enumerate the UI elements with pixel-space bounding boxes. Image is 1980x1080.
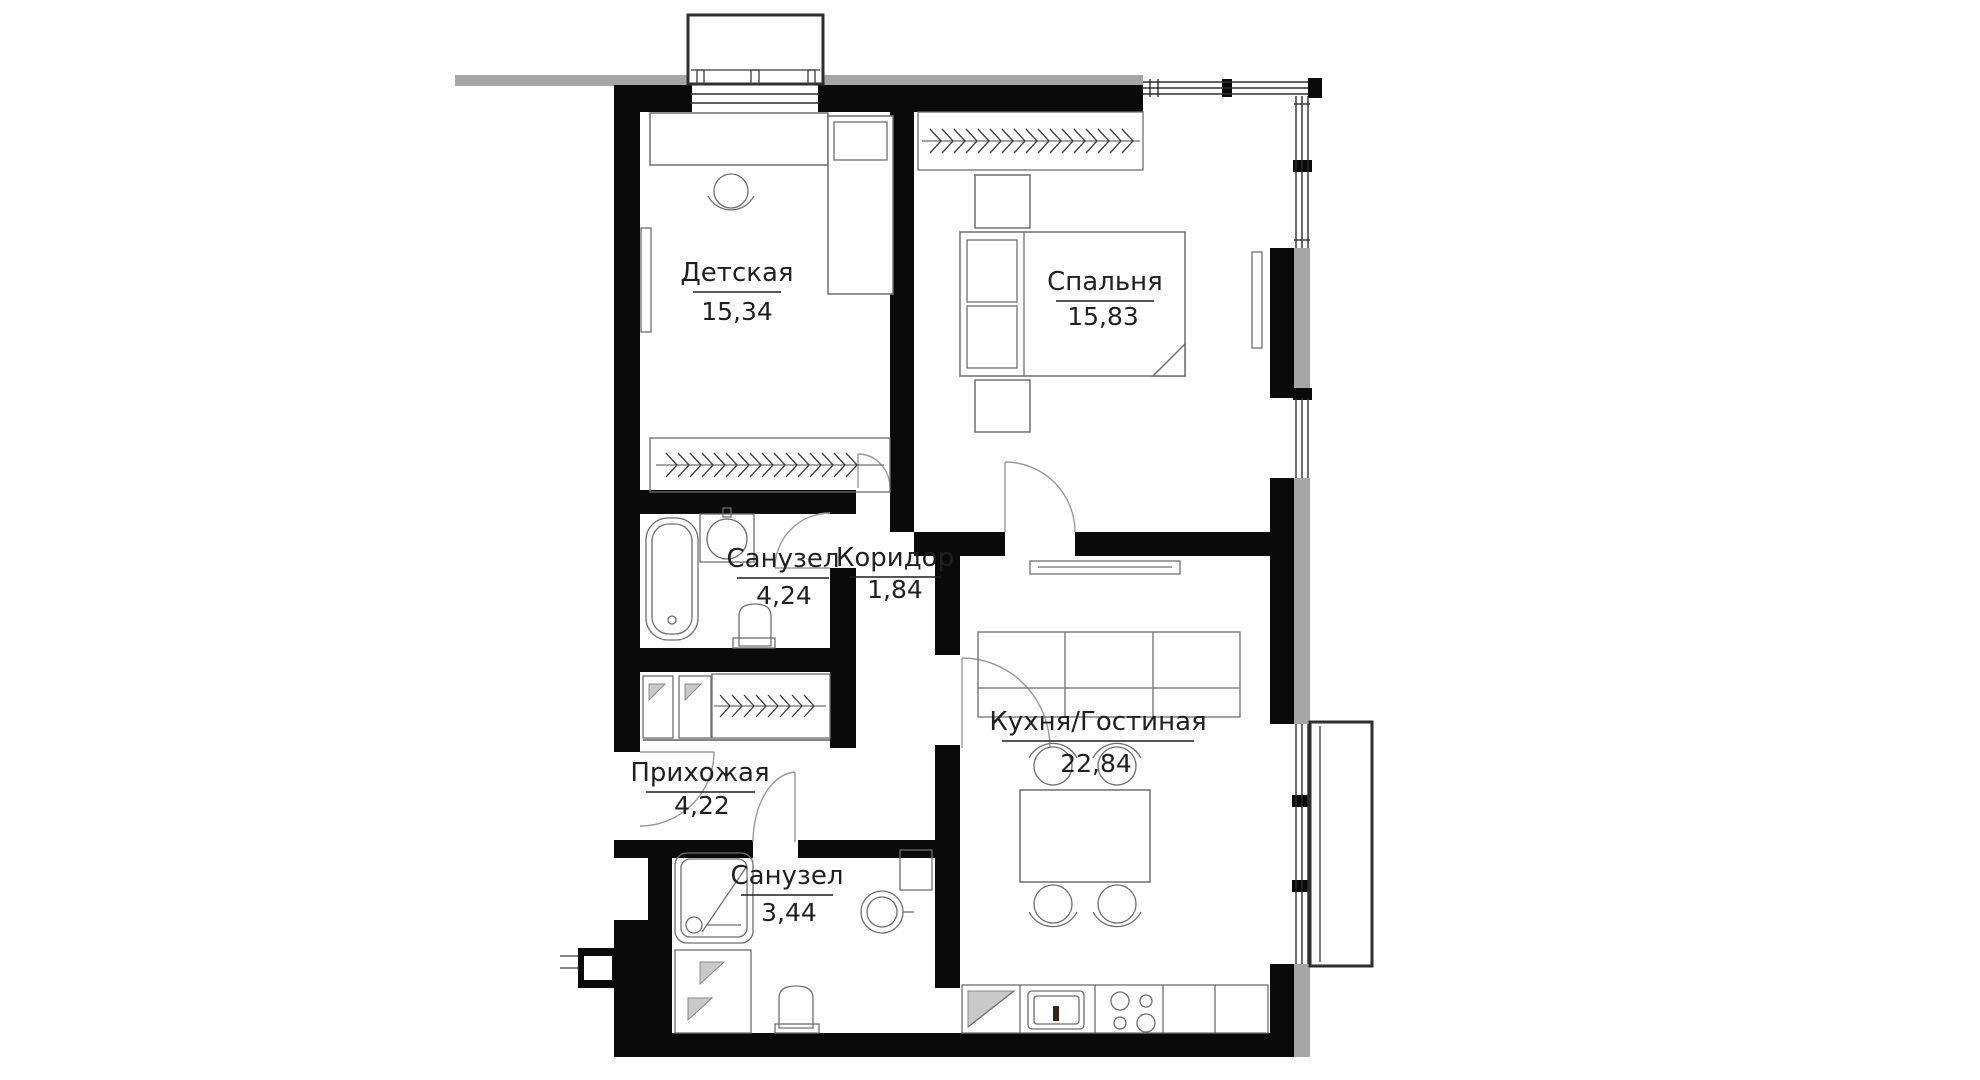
stove-burner bbox=[1114, 1017, 1126, 1029]
label-kitchen-living: Кухня/Гостиная 22,84 bbox=[989, 707, 1206, 778]
balcony-top bbox=[688, 15, 823, 84]
wall-balcony-jamb-right bbox=[818, 85, 828, 112]
bathroom1-toilet-bowl bbox=[739, 604, 771, 646]
washing-machine-drum bbox=[867, 897, 897, 927]
wall-bath2-top-right bbox=[798, 840, 960, 858]
wall-left bbox=[614, 85, 640, 752]
dining-table bbox=[1020, 790, 1150, 882]
room-name: Спальня bbox=[1047, 267, 1163, 297]
shower-drain bbox=[686, 917, 702, 933]
stove-burner bbox=[1111, 992, 1129, 1010]
label-hallway: Прихожая 4,22 bbox=[630, 758, 769, 820]
entrance-threshold-slot bbox=[584, 956, 612, 980]
bedroom-nightstand-2 bbox=[975, 380, 1030, 432]
wall-corner-post bbox=[1308, 78, 1322, 98]
room-name: Кухня/Гостиная bbox=[989, 707, 1206, 737]
room-area: 15,83 bbox=[1067, 302, 1139, 331]
cabinet-fold-icon bbox=[700, 962, 724, 984]
label-bathroom1: Санузел 4,24 bbox=[727, 544, 840, 610]
dining-chair bbox=[1034, 885, 1072, 923]
children-radiator bbox=[641, 228, 651, 332]
wall-bath1-right bbox=[830, 568, 856, 748]
wall-bottom bbox=[614, 1033, 1294, 1057]
wall-bath1-bottom bbox=[640, 648, 830, 672]
bathroom2-toilet-bowl bbox=[779, 986, 813, 1028]
wall-bedroom-bottom-right bbox=[1075, 532, 1270, 556]
room-area: 15,34 bbox=[701, 297, 773, 326]
facade-strip-right-lower bbox=[1294, 964, 1310, 1057]
shaft-fold-icon bbox=[685, 684, 701, 700]
room-name: Коридор bbox=[836, 543, 954, 573]
wall-children-bottom bbox=[640, 490, 856, 514]
wall-outer-lower-left bbox=[614, 920, 648, 1033]
dining-chair-back bbox=[1029, 912, 1077, 927]
room-name: Санузел bbox=[727, 544, 840, 574]
facade-strip-right-mid bbox=[1294, 478, 1310, 724]
label-children-room: Детская 15,34 bbox=[680, 258, 793, 326]
wall-top-main bbox=[828, 85, 1143, 112]
room-name: Детская bbox=[680, 258, 793, 288]
room-area: 22,84 bbox=[1060, 749, 1132, 778]
balcony-top-outline bbox=[688, 15, 823, 84]
wall-balcony-jamb-left bbox=[682, 85, 692, 112]
dining-chair-back bbox=[1093, 912, 1141, 927]
bedroom-nightstand-1 bbox=[975, 175, 1030, 228]
stove-burner bbox=[1137, 1014, 1155, 1032]
kitchen-tap-icon bbox=[1053, 1006, 1059, 1021]
wall-kitchen-left-lower bbox=[935, 745, 960, 988]
bathtub-drain bbox=[668, 616, 676, 624]
floorplan-drawing: Детская 15,34 Спальня 15,83 Санузел 4,24… bbox=[0, 0, 1980, 1080]
sofa bbox=[978, 632, 1240, 717]
room-name: Санузел bbox=[731, 861, 844, 891]
stove-burner bbox=[1140, 995, 1152, 1007]
wall-right-lower bbox=[1270, 964, 1294, 1033]
wall-bath1-right-stub bbox=[830, 505, 856, 513]
bedroom-door-arc bbox=[1005, 462, 1075, 532]
children-door-arc bbox=[858, 454, 890, 488]
room-area: 4,22 bbox=[674, 791, 730, 820]
wall-right-upper bbox=[1270, 248, 1294, 398]
children-room-door bbox=[858, 454, 890, 488]
bedroom-radiator bbox=[1252, 252, 1262, 348]
shaft-fold-icon bbox=[649, 684, 665, 700]
cabinet-fold-icon bbox=[688, 998, 712, 1020]
facade-strip-top-left bbox=[455, 75, 688, 86]
wall-bath2-left bbox=[648, 858, 672, 1033]
children-desk bbox=[650, 113, 828, 165]
facade-strip-top-right bbox=[823, 75, 1143, 86]
wall-bath2-top-left bbox=[614, 840, 753, 858]
hall-wardrobe-band bbox=[643, 674, 830, 740]
balcony-right-outline bbox=[1310, 722, 1372, 966]
dining-chair bbox=[1098, 885, 1136, 923]
children-bed bbox=[828, 116, 893, 294]
floorplan-canvas: Детская 15,34 Спальня 15,83 Санузел 4,24… bbox=[0, 0, 1980, 1080]
bathtub-inner bbox=[652, 524, 692, 634]
room-name: Прихожая bbox=[630, 758, 769, 788]
wall-top-left bbox=[614, 85, 690, 112]
room-area: 3,44 bbox=[761, 898, 817, 927]
bedroom-door bbox=[1005, 462, 1075, 532]
bathtub bbox=[646, 518, 698, 640]
room-kitchen-furniture bbox=[962, 561, 1268, 1033]
room-area: 4,24 bbox=[756, 581, 812, 610]
room-area: 1,84 bbox=[867, 575, 923, 604]
facade-strip-right-upper bbox=[1294, 248, 1310, 398]
wall-right-pillar bbox=[1270, 478, 1294, 724]
children-chair bbox=[714, 174, 748, 208]
balcony-right bbox=[1310, 722, 1372, 966]
